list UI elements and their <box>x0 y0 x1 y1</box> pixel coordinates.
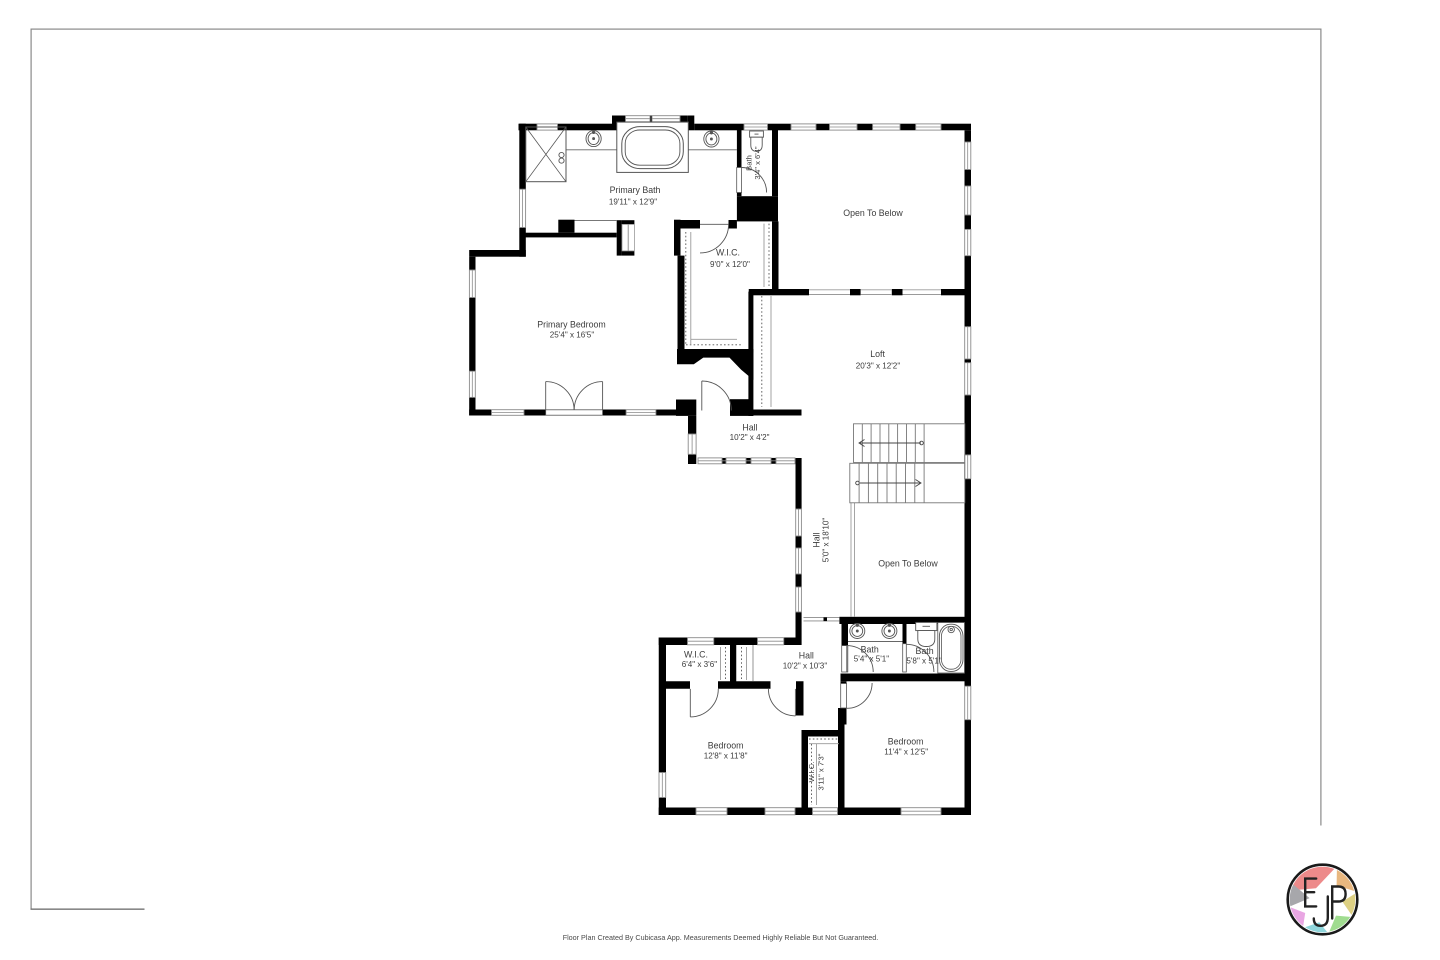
svg-text:Bath: Bath <box>916 646 934 656</box>
svg-text:Primary Bath: Primary Bath <box>610 185 661 195</box>
svg-text:11'4" x 12'5": 11'4" x 12'5" <box>884 747 928 756</box>
svg-text:Floor Plan Created By Cubicasa: Floor Plan Created By Cubicasa App. Meas… <box>563 933 879 942</box>
svg-text:12'8" x 11'8": 12'8" x 11'8" <box>704 751 748 760</box>
svg-text:Open To Below: Open To Below <box>843 208 903 218</box>
svg-text:Hall: Hall <box>742 423 757 433</box>
svg-text:25'4" x 16'5": 25'4" x 16'5" <box>550 331 595 340</box>
svg-text:Primary Bedroom: Primary Bedroom <box>537 320 605 330</box>
svg-text:5'0" x 18'10": 5'0" x 18'10" <box>822 518 831 563</box>
svg-text:Bedroom: Bedroom <box>888 737 924 747</box>
svg-text:W.I.C.: W.I.C. <box>716 248 740 258</box>
svg-text:19'11" x 12'9": 19'11" x 12'9" <box>609 198 657 207</box>
svg-text:3'11" x 7'3": 3'11" x 7'3" <box>817 753 826 790</box>
svg-text:Hall: Hall <box>799 651 814 661</box>
svg-text:W.I.C.: W.I.C. <box>684 650 708 660</box>
svg-text:9'0" x 12'0": 9'0" x 12'0" <box>710 260 750 269</box>
svg-text:3'4" x 6'4": 3'4" x 6'4" <box>753 146 762 180</box>
svg-text:Loft: Loft <box>870 349 885 359</box>
svg-text:Bedroom: Bedroom <box>708 740 744 750</box>
svg-text:Hall: Hall <box>812 532 822 547</box>
svg-text:W.I.C.: W.I.C. <box>807 762 816 783</box>
svg-text:10'2" x 4'2": 10'2" x 4'2" <box>730 433 770 442</box>
svg-text:6'4" x 3'6": 6'4" x 3'6" <box>682 660 718 669</box>
svg-text:Open To Below: Open To Below <box>878 559 938 569</box>
svg-text:5'8" x 5'1": 5'8" x 5'1" <box>906 656 942 665</box>
svg-text:10'2" x 10'3": 10'2" x 10'3" <box>783 661 828 670</box>
svg-text:5'4" x 5'1": 5'4" x 5'1" <box>854 655 890 664</box>
svg-text:20'3" x 12'2": 20'3" x 12'2" <box>856 362 901 371</box>
svg-text:Bath: Bath <box>861 645 879 655</box>
